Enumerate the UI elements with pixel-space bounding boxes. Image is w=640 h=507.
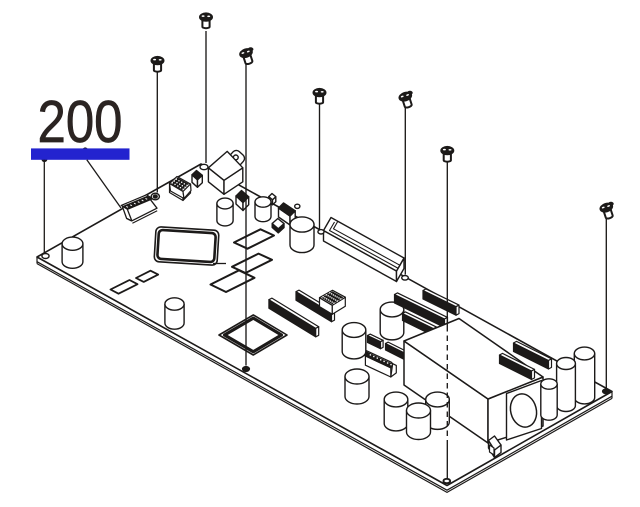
svg-text:200: 200 [38,89,123,155]
